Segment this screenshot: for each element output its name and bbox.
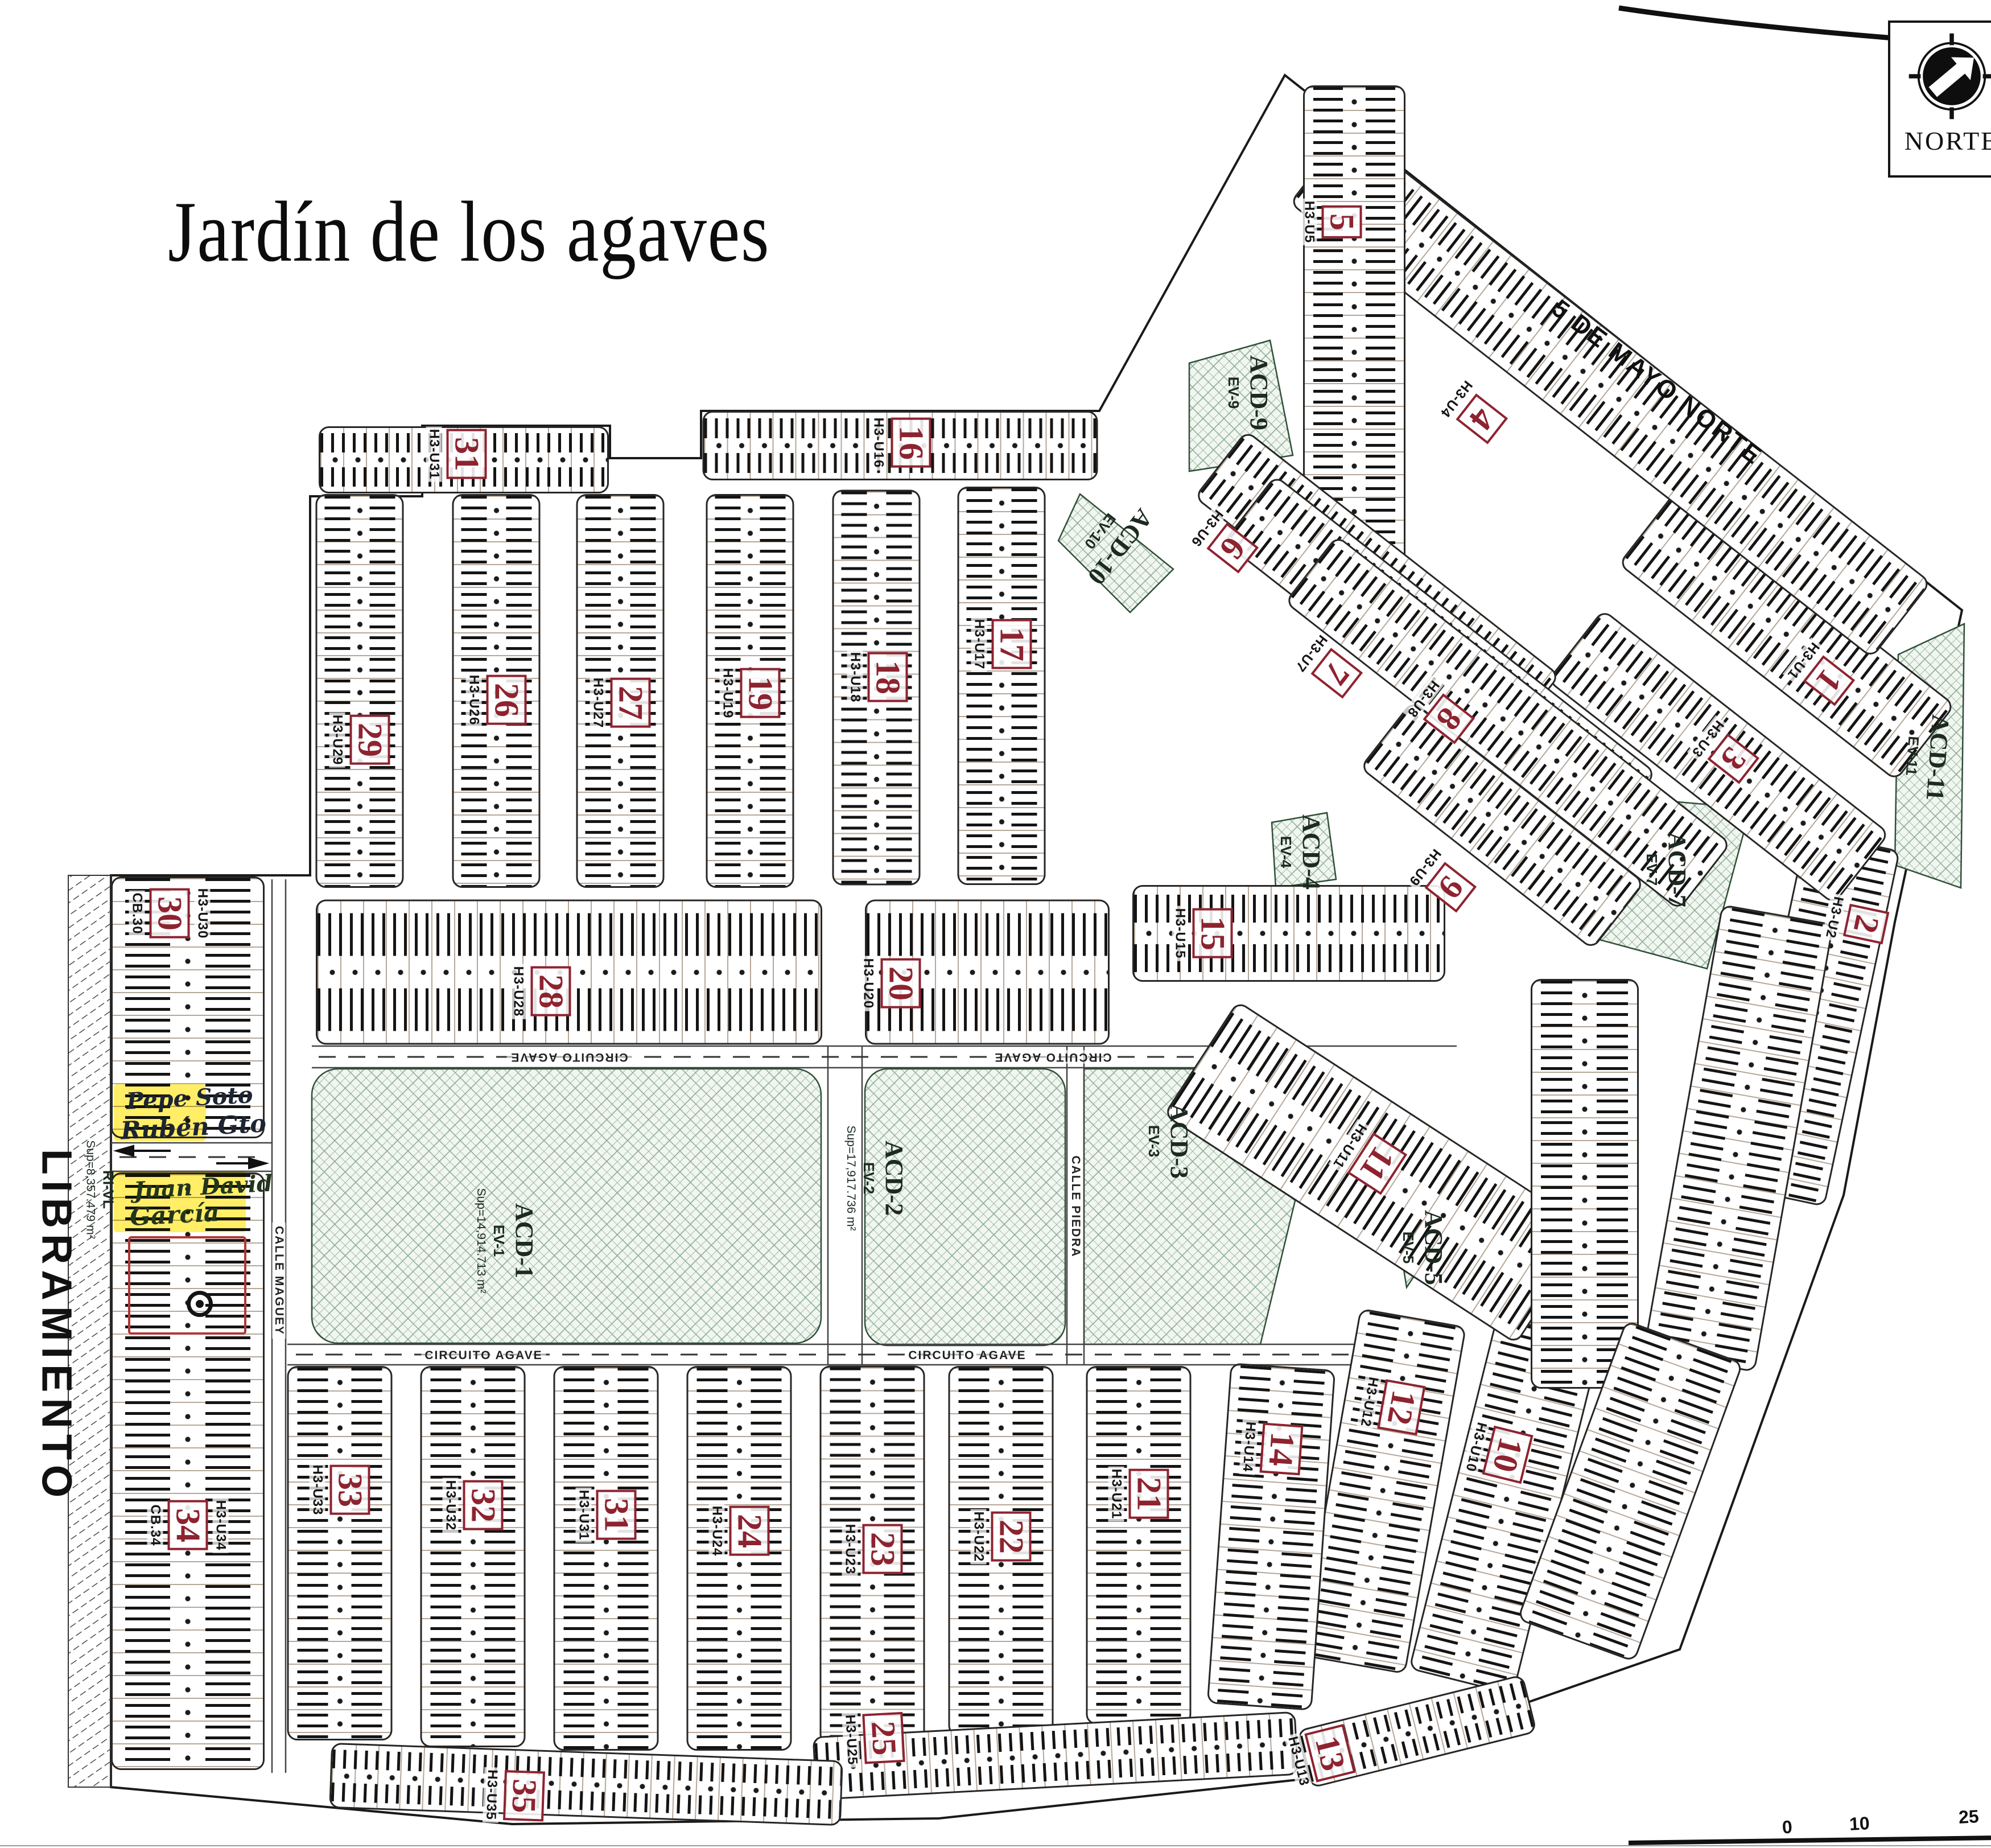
acd-name: ACD-5	[1419, 1210, 1448, 1285]
acd1-label: ACD-1EV-1Sup=14,914.713 m²	[474, 1188, 539, 1293]
acd-ev-code: EV-3	[1145, 1125, 1163, 1157]
acd7-label: ACD-7EV-7	[1643, 832, 1692, 907]
block-23-label: 23H3-U23	[842, 1522, 903, 1577]
block-33-area	[287, 1366, 393, 1740]
north-indicator: NORTE	[1888, 20, 1991, 178]
block-16-label: 16H3-U16	[871, 415, 931, 471]
block-code: H3-U29	[329, 713, 345, 768]
acd-ev-code: EV-7	[1643, 854, 1660, 886]
block-19-label: 19H3-U19	[720, 666, 781, 721]
block-20-label: 20H3-U20	[860, 956, 921, 1011]
acd11-label: ACD-11EV-11	[1901, 712, 1955, 801]
block-code: H3-U25	[842, 1712, 860, 1768]
circuito-agave-label-1: CIRCUITO AGAVE	[506, 1050, 631, 1064]
block-number: 26	[487, 675, 527, 725]
acd-name: ACD-11	[1920, 714, 1955, 802]
block-code: H3-U30	[195, 886, 211, 941]
circuito-agave-label-3: CIRCUITO AGAVE	[421, 1349, 546, 1363]
block-number: 28	[531, 966, 571, 1016]
block-17-label: 17H3-U17	[971, 617, 1032, 672]
block-number: 20	[881, 958, 921, 1009]
block-code: H3-U22	[971, 1509, 987, 1565]
acd-ev-code: EV-9	[1225, 377, 1242, 409]
block-18-label: 18H3-U18	[847, 650, 908, 705]
block-32-area	[421, 1366, 526, 1747]
acd5-label: ACD-5EV-5	[1399, 1210, 1448, 1285]
block-number: 35	[503, 1770, 545, 1821]
block-number: 21	[1129, 1469, 1169, 1519]
block-code: H3-U27	[590, 676, 606, 731]
ri-vl-code: RI-VL	[100, 1170, 117, 1209]
block-number: 17	[992, 619, 1032, 669]
block-code: H3-U17	[971, 617, 987, 672]
circuito-agave-label-2: CIRCUITO AGAVE	[990, 1050, 1115, 1064]
block-15-label: 15H3-U15	[1172, 906, 1233, 961]
block-number: 2	[1843, 904, 1890, 944]
acd3-label: ACD-3EV-3	[1145, 1104, 1194, 1179]
handwritten-owner-b2: García	[129, 1199, 220, 1232]
block-number: 33	[330, 1465, 370, 1515]
compass-icon	[1906, 31, 1991, 122]
block-number: 12	[1377, 1380, 1425, 1436]
block-33-label: 33H3-U33	[310, 1463, 370, 1518]
block-code: H3-U35	[483, 1767, 500, 1823]
block-22-label: 22H3-U22	[971, 1509, 1032, 1565]
block-code: H3-U20	[860, 956, 876, 1011]
acd-sup-area: Sup=14,914.713 m²	[474, 1188, 488, 1293]
block-extra-code: CB.34	[147, 1502, 163, 1548]
block-extra-code: CB.30	[129, 890, 145, 936]
block-code: H3-U26	[466, 673, 482, 728]
acd2-label: ACD-2EV-2Sup=17,917.736 m²	[844, 1125, 909, 1230]
lot-strip	[1531, 979, 1639, 1389]
block-31-label: 31H3-U31	[426, 427, 487, 482]
block-35-area	[329, 1743, 843, 1826]
block-number: 25	[862, 1712, 905, 1764]
north-label: NORTE	[1890, 126, 1991, 156]
block-code: H3-U16	[871, 415, 887, 471]
block-number: 16	[891, 418, 931, 468]
block-27-label: 27H3-U27	[590, 676, 651, 731]
block-number: 30	[150, 888, 190, 939]
block-34-label: H3-U3434CB.34	[147, 1498, 229, 1553]
block-35-label: 35H3-U35	[483, 1767, 545, 1824]
acd-name: ACD-2	[880, 1141, 909, 1216]
scale-tick-25: 25	[1958, 1806, 1979, 1828]
block-number: 5	[1322, 205, 1362, 238]
block-number: 34	[168, 1500, 208, 1550]
block-code: H3-U14	[1239, 1419, 1259, 1475]
block-number: 22	[991, 1512, 1032, 1562]
map-canvas: 1H3-U12H3-U23H3-U34H3-U45H3-U56H3-U67H3-…	[0, 0, 1991, 1848]
calle-maguey-label: CALLE MAGUEY	[272, 1223, 286, 1339]
block-31-area	[554, 1366, 659, 1751]
acd-ev-code: EV-1	[490, 1225, 508, 1257]
block-code: H3-U34	[213, 1498, 229, 1553]
ri-vl-sup: Sup=8,357.479 m²	[84, 1140, 97, 1238]
block-number: 24	[729, 1506, 770, 1556]
acd-ev-code: EV-11	[1902, 735, 1923, 776]
acd10-label: ACD-10EV-10	[1066, 491, 1159, 590]
block-number: 18	[868, 652, 908, 702]
block-number: 32	[463, 1480, 504, 1530]
block-29-label: 29H3-U29	[329, 713, 390, 768]
block-number: 14	[1259, 1423, 1303, 1476]
acd9-label: ACD-9EV-9	[1225, 355, 1273, 430]
block-number: 27	[611, 678, 651, 728]
acd-ev-code: EV-5	[1399, 1232, 1417, 1263]
block-26-label: 26H3-U26	[466, 673, 527, 728]
scale-tick-0: 0	[1782, 1817, 1793, 1838]
marker-circle-icon	[187, 1291, 213, 1317]
calle-piedra-label: CALLE PIEDRA	[1069, 1152, 1082, 1261]
block-32-label: 32H3-U32	[443, 1478, 504, 1533]
block-number: 15	[1193, 908, 1233, 958]
block-28-label: 28H3-U28	[510, 964, 571, 1019]
block-number: 29	[350, 715, 390, 765]
scale-tick-10: 10	[1849, 1813, 1870, 1835]
block-number: 23	[863, 1524, 903, 1574]
block-code: H3-U5	[1301, 199, 1317, 245]
block-4-label: 4H3-U4	[1435, 376, 1512, 450]
block-code: H3-U28	[510, 964, 526, 1019]
block-14-label: 14H3-U14	[1239, 1419, 1303, 1478]
block-5-label: 5H3-U5	[1301, 199, 1362, 245]
block-21-area	[1086, 1366, 1192, 1724]
block-code: H3-U21	[1108, 1467, 1124, 1522]
circuito-agave-label-4: CIRCUITO AGAVE	[905, 1349, 1029, 1363]
block-17-area	[958, 487, 1046, 885]
block-code: H3-U23	[842, 1522, 858, 1577]
block-31-label: 31H3-U31	[576, 1488, 637, 1543]
acd-ev-code: EV-4	[1277, 836, 1295, 868]
page-title: Jardín de los agaves	[168, 182, 770, 281]
block-code: H3-U18	[847, 650, 863, 705]
acd-ev-code: EV-2	[860, 1162, 877, 1194]
block-code: H3-U31	[576, 1488, 592, 1543]
block-21-label: 21H3-U21	[1108, 1467, 1169, 1522]
block-number: 31	[596, 1490, 637, 1540]
acd-name: ACD-9	[1244, 355, 1273, 430]
acd-sup-area: Sup=17,917.736 m²	[844, 1125, 858, 1230]
block-code: H3-U32	[443, 1478, 459, 1533]
libramiento-label: LIBRAMIENTO	[33, 1149, 81, 1504]
block-number: 31	[447, 429, 487, 479]
acd4-label: ACD-4EV-4	[1277, 814, 1326, 890]
block-code: H3-U31	[426, 427, 442, 482]
block-24-label: 24H3-U24	[709, 1504, 770, 1559]
ri-vl-label: RI-VL Sup=8,357.479 m²	[84, 1140, 117, 1238]
block-code: H3-U33	[310, 1463, 325, 1518]
red-pen-lot-outline	[128, 1236, 246, 1335]
block-code: H3-U15	[1172, 906, 1188, 961]
block-25-label: 25H3-U25	[842, 1710, 905, 1768]
block-29-area	[316, 494, 404, 888]
block-12-label: 12H3-U12	[1357, 1373, 1426, 1438]
block-number: 19	[740, 668, 781, 718]
block-30-label: H3-U3030CB.30	[129, 886, 211, 941]
acd-name: ACD-1	[510, 1203, 539, 1278]
acd-name: ACD-7	[1663, 832, 1692, 907]
acd-name: ACD-3	[1165, 1104, 1194, 1179]
acd-name: ACD-4	[1297, 814, 1326, 890]
block-code: H3-U19	[720, 666, 736, 721]
block-code: H3-U24	[709, 1504, 725, 1559]
